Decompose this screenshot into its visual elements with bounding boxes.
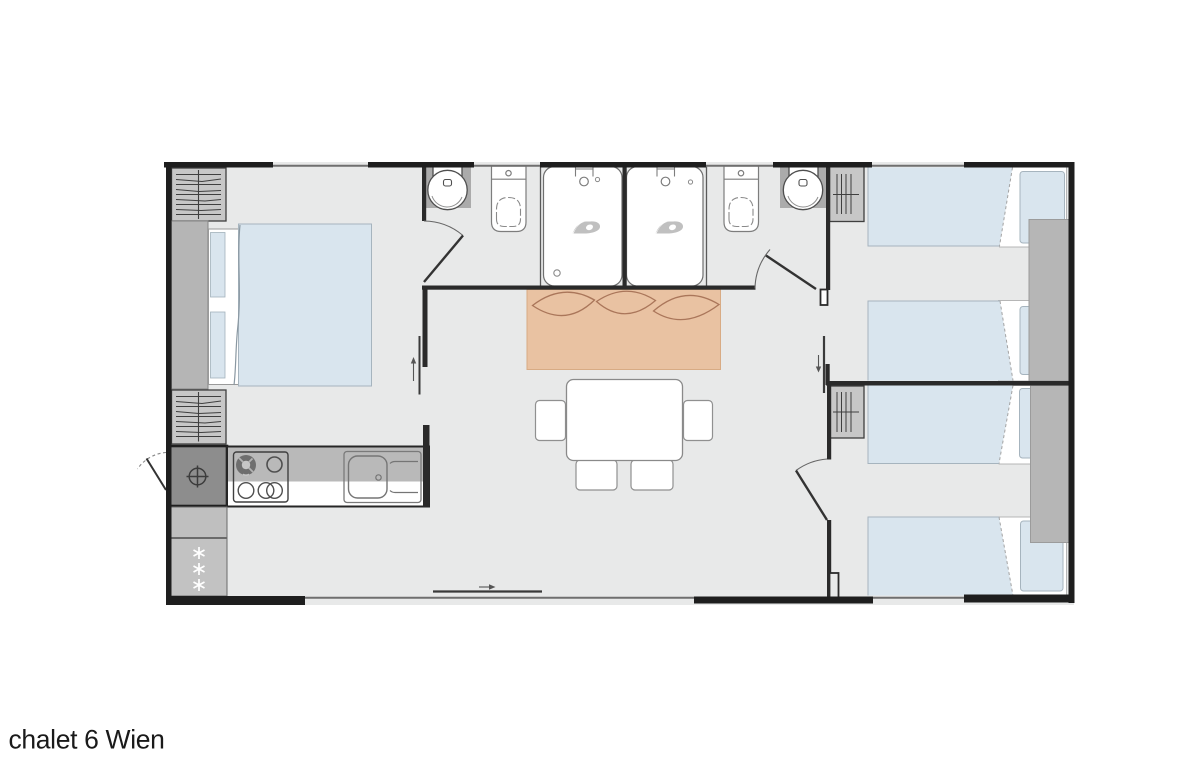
svg-text:chalet 6 Wien: chalet 6 Wien [9, 725, 165, 755]
